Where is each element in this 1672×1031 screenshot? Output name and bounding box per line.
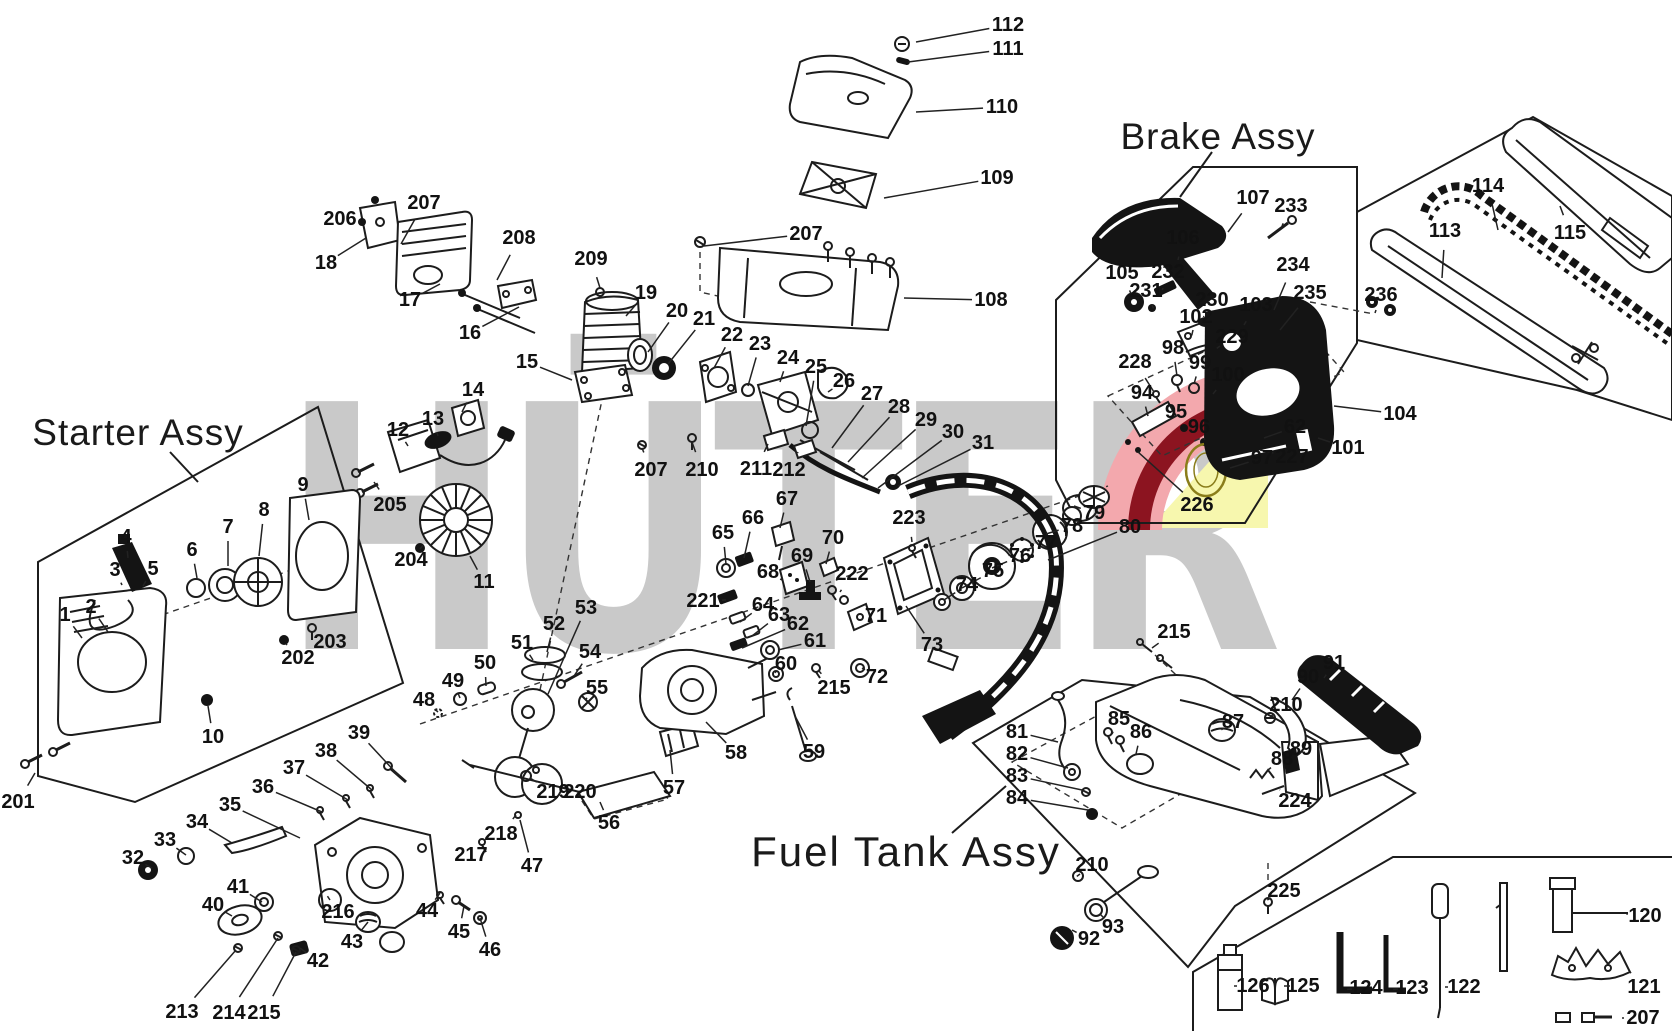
part-label-1: 1 <box>59 605 70 625</box>
part-label-72: 72 <box>866 667 888 687</box>
part-label-86: 86 <box>1130 722 1152 742</box>
part-label-66: 66 <box>742 508 764 528</box>
part-label-39: 39 <box>348 723 370 743</box>
part-label-206: 206 <box>323 209 356 229</box>
part-label-226: 226 <box>1180 495 1213 515</box>
part-label-52: 52 <box>543 614 565 634</box>
part-label-203: 203 <box>313 632 346 652</box>
part-label-204: 204 <box>394 550 427 570</box>
part-label-104: 104 <box>1383 404 1416 424</box>
part-label-54: 54 <box>579 642 601 662</box>
part-label-123: 123 <box>1395 978 1428 998</box>
part-label-45: 45 <box>448 922 470 942</box>
part-label-46: 46 <box>479 940 501 960</box>
part-label-231: 231 <box>1129 281 1162 301</box>
part-label-114: 114 <box>1472 176 1504 196</box>
part-label-225: 225 <box>1267 881 1300 901</box>
part-label-103: 103 <box>1239 295 1272 315</box>
exploded-parts-diagram: HÜTER <box>0 0 1672 1031</box>
part-label-211: 211 <box>740 459 772 479</box>
part-label-3: 3 <box>109 560 120 580</box>
part-label-220: 220 <box>563 782 596 802</box>
part-label-27: 27 <box>861 384 883 404</box>
part-label-55: 55 <box>586 678 608 698</box>
part-label-222: 222 <box>835 564 868 584</box>
part-label-47: 47 <box>521 856 543 876</box>
part-label-69: 69 <box>791 546 813 566</box>
part-label-74: 74 <box>956 575 978 595</box>
part-label-115: 115 <box>1554 223 1586 243</box>
part-label-109: 109 <box>980 168 1013 188</box>
part-label-81: 81 <box>1006 722 1028 742</box>
part-label-96: 96 <box>1188 417 1210 437</box>
part-label-100: 100 <box>1211 365 1244 385</box>
part-label-17: 17 <box>399 290 421 310</box>
part-label-44: 44 <box>416 901 438 921</box>
part-label-57: 57 <box>663 778 685 798</box>
part-label-58: 58 <box>725 743 747 763</box>
part-label-101: 101 <box>1331 438 1364 458</box>
part-label-21: 21 <box>693 309 715 329</box>
part-label-78: 78 <box>1061 516 1083 536</box>
part-label-215: 215 <box>247 1003 280 1023</box>
part-label-213: 213 <box>165 1002 198 1022</box>
part-label-212: 212 <box>772 460 805 480</box>
part-label-42: 42 <box>307 951 329 971</box>
part-labels-layer: 1121111101091082072062071817162082091915… <box>0 0 1672 1031</box>
part-label-15: 15 <box>516 352 538 372</box>
part-label-215: 215 <box>817 678 850 698</box>
part-label-6: 6 <box>186 540 197 560</box>
part-label-38: 38 <box>315 741 337 761</box>
part-label-53: 53 <box>575 598 597 618</box>
part-label-60: 60 <box>775 654 797 674</box>
assembly-title-starter: Starter Assy <box>32 412 243 454</box>
part-label-209: 209 <box>574 249 607 269</box>
part-label-112: 112 <box>992 15 1024 35</box>
part-label-229: 229 <box>1215 327 1248 347</box>
part-label-20: 20 <box>666 301 688 321</box>
part-label-208: 208 <box>502 228 535 248</box>
part-label-107: 107 <box>1236 188 1269 208</box>
part-label-24: 24 <box>777 348 799 368</box>
part-label-89: 89 <box>1290 739 1312 759</box>
part-label-97: 97 <box>1251 448 1273 468</box>
part-label-79: 79 <box>1083 503 1105 523</box>
part-label-41: 41 <box>227 877 249 897</box>
part-label-75: 75 <box>982 561 1004 581</box>
part-label-98: 98 <box>1162 338 1184 358</box>
part-label-9: 9 <box>297 475 308 495</box>
part-label-10: 10 <box>202 727 224 747</box>
part-label-216: 216 <box>321 902 354 922</box>
part-label-71: 71 <box>865 606 887 626</box>
part-label-210: 210 <box>1075 855 1108 875</box>
part-label-207: 207 <box>634 460 667 480</box>
part-label-14: 14 <box>462 380 484 400</box>
part-label-87: 87 <box>1222 712 1244 732</box>
part-label-76: 76 <box>1009 546 1031 566</box>
part-label-121: 121 <box>1627 977 1660 997</box>
part-label-210: 210 <box>1269 695 1302 715</box>
part-label-19: 19 <box>635 283 657 303</box>
part-label-227: 227 <box>1275 447 1308 467</box>
part-label-113: 113 <box>1429 221 1461 241</box>
part-label-64: 64 <box>752 595 774 615</box>
part-label-22: 22 <box>721 325 743 345</box>
part-label-59: 59 <box>803 742 825 762</box>
part-label-108: 108 <box>974 290 1007 310</box>
part-label-43: 43 <box>341 932 363 952</box>
part-label-26: 26 <box>833 371 855 391</box>
part-label-215: 215 <box>1157 622 1190 642</box>
part-label-218: 218 <box>484 824 517 844</box>
part-label-25: 25 <box>805 357 827 377</box>
part-label-106: 106 <box>1166 228 1199 248</box>
part-label-29: 29 <box>915 410 937 430</box>
part-label-83: 83 <box>1006 766 1028 786</box>
part-label-68: 68 <box>757 562 779 582</box>
part-label-62: 62 <box>787 614 809 634</box>
part-label-232: 232 <box>1151 262 1184 282</box>
part-label-7: 7 <box>222 517 233 537</box>
part-label-95: 95 <box>1165 402 1187 422</box>
part-label-122: 122 <box>1447 977 1480 997</box>
part-label-56: 56 <box>598 813 620 833</box>
part-label-111: 111 <box>992 39 1023 59</box>
part-label-4: 4 <box>120 527 131 547</box>
part-label-51: 51 <box>511 633 533 653</box>
part-label-62: 62 <box>1284 417 1306 437</box>
part-label-35: 35 <box>219 795 241 815</box>
part-label-82: 82 <box>1006 744 1028 764</box>
part-label-99: 99 <box>1189 353 1211 373</box>
part-label-18: 18 <box>315 253 337 273</box>
part-label-30: 30 <box>942 422 964 442</box>
part-label-48: 48 <box>413 690 435 710</box>
part-label-65: 65 <box>712 523 734 543</box>
part-label-234: 234 <box>1276 255 1309 275</box>
part-label-221: 221 <box>686 591 719 611</box>
part-label-73: 73 <box>921 635 943 655</box>
part-label-34: 34 <box>186 812 208 832</box>
part-label-207: 207 <box>789 224 822 244</box>
part-label-207: 207 <box>1626 1008 1659 1028</box>
part-label-13: 13 <box>422 409 444 429</box>
part-label-93: 93 <box>1102 917 1124 937</box>
part-label-67: 67 <box>776 489 798 509</box>
part-label-228: 228 <box>1118 352 1151 372</box>
part-label-110: 110 <box>986 97 1018 117</box>
part-label-16: 16 <box>459 323 481 343</box>
part-label-233: 233 <box>1274 196 1307 216</box>
part-label-91: 91 <box>1323 653 1345 673</box>
part-label-77: 77 <box>1035 533 1057 553</box>
part-label-94: 94 <box>1131 383 1153 403</box>
part-label-85: 85 <box>1108 709 1130 729</box>
part-label-214: 214 <box>212 1003 245 1023</box>
part-label-235: 235 <box>1293 283 1326 303</box>
part-label-50: 50 <box>474 653 496 673</box>
part-label-49: 49 <box>442 671 464 691</box>
part-label-201: 201 <box>1 792 34 812</box>
part-label-202: 202 <box>281 648 314 668</box>
part-label-124: 124 <box>1349 978 1382 998</box>
part-label-5: 5 <box>147 559 158 579</box>
part-label-223: 223 <box>892 508 925 528</box>
part-label-224: 224 <box>1278 791 1311 811</box>
part-label-28: 28 <box>888 397 910 417</box>
part-label-236: 236 <box>1364 285 1397 305</box>
part-label-33: 33 <box>154 830 176 850</box>
part-label-37: 37 <box>283 758 305 778</box>
part-label-84: 84 <box>1006 788 1028 808</box>
part-label-11: 11 <box>473 572 494 592</box>
assembly-title-fuel: Fuel Tank Assy <box>751 828 1061 876</box>
part-label-102: 102 <box>1179 307 1212 327</box>
part-label-207: 207 <box>407 193 440 213</box>
part-label-31: 31 <box>972 433 994 453</box>
part-label-80: 80 <box>1119 517 1141 537</box>
part-label-23: 23 <box>749 334 771 354</box>
part-label-36: 36 <box>252 777 274 797</box>
part-label-2: 2 <box>85 597 96 617</box>
part-label-8: 8 <box>258 500 269 520</box>
part-label-125: 125 <box>1286 976 1319 996</box>
part-label-120: 120 <box>1628 906 1661 926</box>
assembly-title-brake: Brake Assy <box>1120 116 1315 158</box>
part-label-205: 205 <box>373 495 406 515</box>
part-label-70: 70 <box>822 528 844 548</box>
part-label-12: 12 <box>387 420 409 440</box>
part-label-90: 90 <box>1297 667 1319 687</box>
part-label-217: 217 <box>454 845 487 865</box>
part-label-32: 32 <box>122 848 144 868</box>
part-label-126: 126 <box>1236 976 1269 996</box>
part-label-210: 210 <box>685 460 718 480</box>
part-label-92: 92 <box>1078 929 1100 949</box>
part-label-40: 40 <box>202 895 224 915</box>
